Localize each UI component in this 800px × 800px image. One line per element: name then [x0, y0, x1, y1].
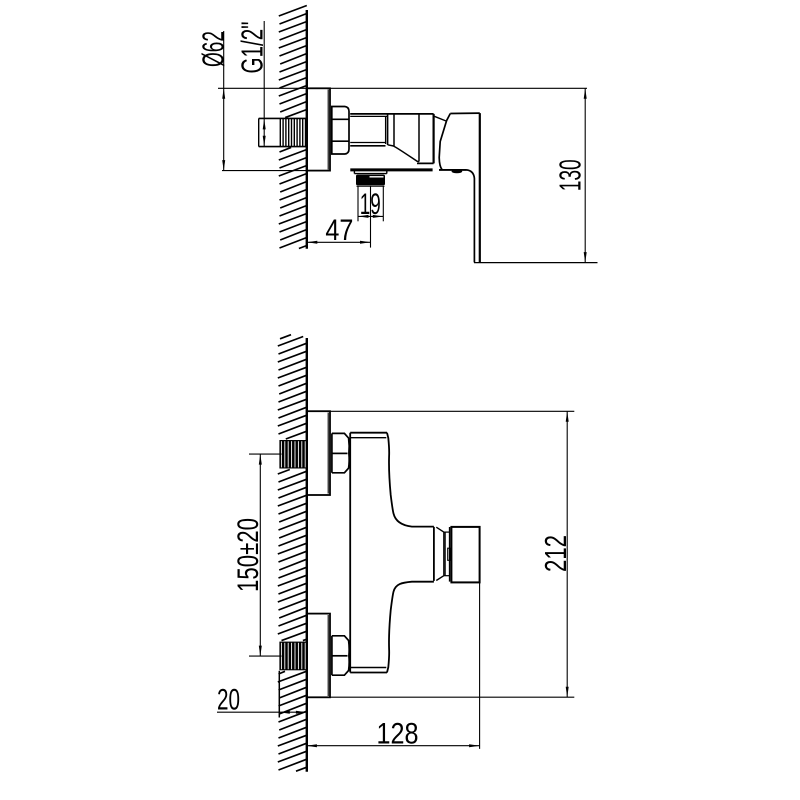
svg-text:20: 20 — [217, 684, 240, 717]
svg-text:150±20: 150±20 — [232, 518, 265, 592]
svg-text:Ø62: Ø62 — [195, 31, 230, 67]
svg-text:19: 19 — [360, 188, 381, 221]
svg-text:47: 47 — [325, 214, 353, 247]
svg-text:212: 212 — [539, 535, 573, 572]
svg-text:128: 128 — [377, 717, 419, 750]
svg-text:130: 130 — [554, 159, 588, 191]
svg-text:G1/2": G1/2" — [236, 22, 270, 74]
